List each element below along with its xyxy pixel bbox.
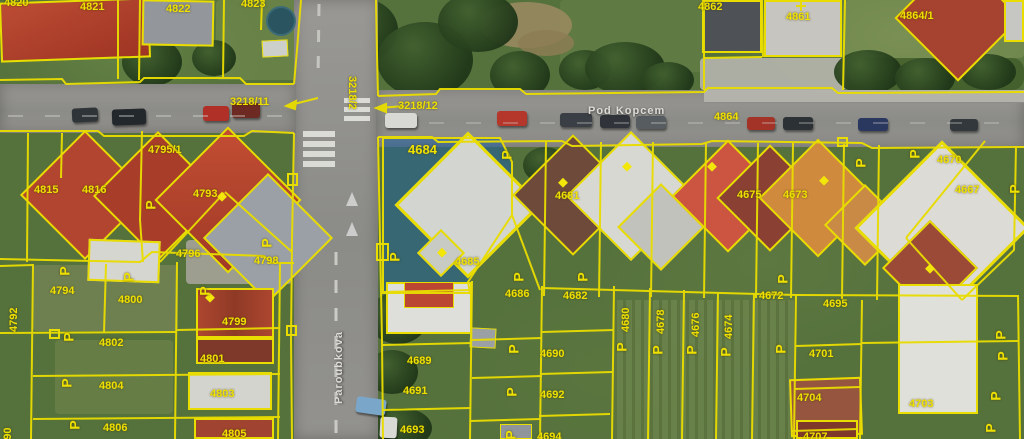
gate-notches [50, 138, 847, 338]
building-point-symbols [205, 162, 935, 303]
cadastral-map-viewport[interactable]: 4820482148224823486248614864/14795/14815… [0, 0, 1024, 439]
parcel-boundaries-layer [0, 0, 1024, 439]
